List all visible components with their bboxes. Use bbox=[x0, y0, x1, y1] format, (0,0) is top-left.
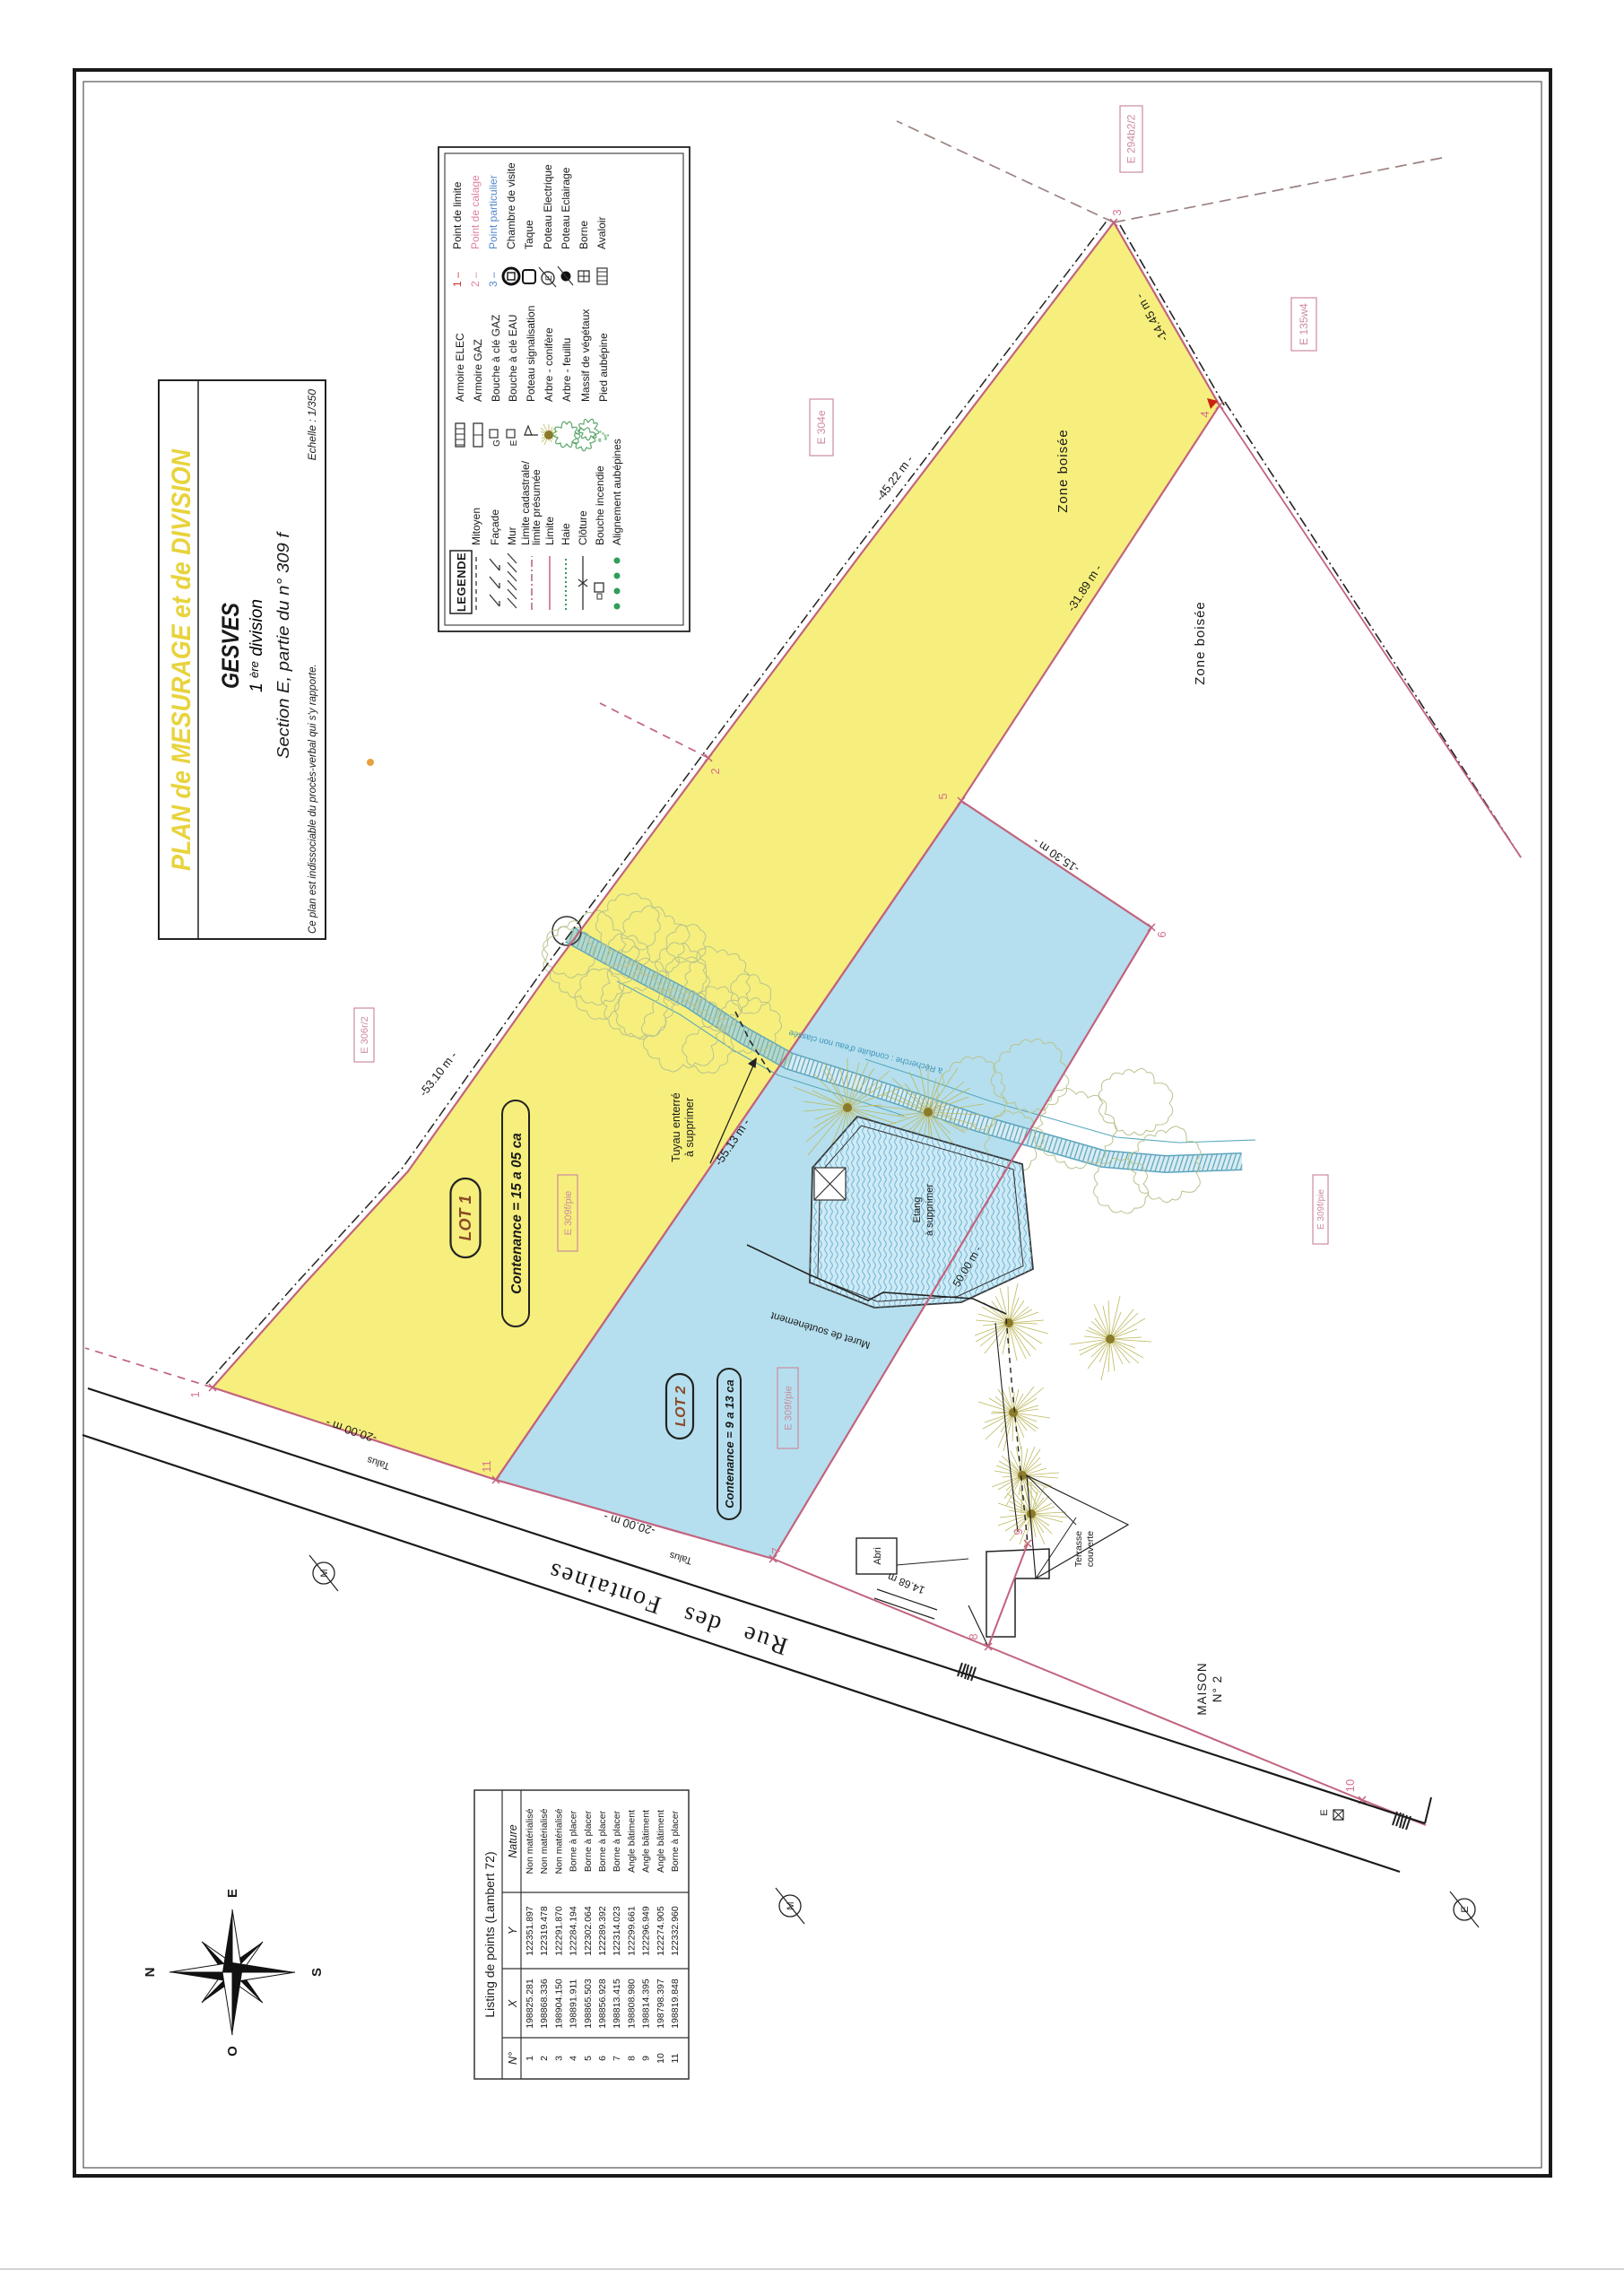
svg-text:Y: Y bbox=[507, 1926, 519, 1935]
svg-text:Pied aubépine: Pied aubépine bbox=[597, 333, 610, 402]
svg-text:1 –: 1 – bbox=[451, 272, 464, 287]
svg-text:E 309f/pie: E 309f/pie bbox=[783, 1386, 794, 1431]
svg-text:O: O bbox=[225, 2046, 240, 2057]
svg-text:Haie: Haie bbox=[560, 523, 572, 545]
svg-text:E 309f/pie: E 309f/pie bbox=[563, 1191, 574, 1236]
svg-text:8: 8 bbox=[967, 1633, 980, 1639]
svg-text:1: 1 bbox=[525, 2056, 535, 2061]
svg-text:Point de limite: Point de limite bbox=[451, 181, 464, 249]
svg-text:Talus: Talus bbox=[366, 1454, 392, 1472]
svg-text:E 294b2/2: E 294b2/2 bbox=[1125, 114, 1138, 163]
svg-text:Bouche à clé EAU: Bouche à clé EAU bbox=[507, 315, 519, 402]
svg-text:122332.960: 122332.960 bbox=[670, 1906, 681, 1956]
svg-text:Poteau Eclairage: Poteau Eclairage bbox=[560, 167, 572, 249]
svg-text:10: 10 bbox=[1343, 1779, 1357, 1792]
svg-text:LEGENDE: LEGENDE bbox=[455, 552, 468, 612]
svg-text:Arbre - feuillu: Arbre - feuillu bbox=[560, 338, 573, 402]
svg-text:198819.848: 198819.848 bbox=[670, 1979, 681, 2029]
svg-text:Mur: Mur bbox=[506, 526, 518, 545]
svg-text:Armoire GAZ: Armoire GAZ bbox=[472, 339, 484, 402]
svg-text:6: 6 bbox=[597, 2056, 608, 2061]
svg-text:Non matérialisé: Non matérialisé bbox=[525, 1808, 535, 1874]
svg-text:Ce plan est indissociable du p: Ce plan est indissociable du procès-verb… bbox=[308, 664, 318, 934]
svg-text:198798.397: 198798.397 bbox=[656, 1979, 666, 2029]
svg-text:2: 2 bbox=[708, 768, 722, 774]
svg-text:Contenance = 9 a 13 ca: Contenance = 9 a 13 ca bbox=[723, 1379, 736, 1508]
svg-text:Zone boisée: Zone boisée bbox=[1055, 429, 1071, 513]
svg-text:Alignement aubépines: Alignement aubépines bbox=[611, 439, 623, 545]
svg-text:E 135w4: E 135w4 bbox=[1298, 303, 1310, 345]
svg-text:198904.150: 198904.150 bbox=[553, 1979, 564, 2029]
svg-text:122291.870: 122291.870 bbox=[553, 1906, 564, 1956]
svg-text:198808.980: 198808.980 bbox=[626, 1979, 637, 2029]
svg-text:11: 11 bbox=[480, 1460, 493, 1473]
svg-text:122284.194: 122284.194 bbox=[569, 1906, 579, 1956]
svg-text:8: 8 bbox=[626, 2056, 637, 2061]
svg-text:GESVES: GESVES bbox=[217, 603, 244, 689]
svg-text:limite présumée: limite présumée bbox=[530, 469, 543, 545]
svg-text:E 306r/2: E 306r/2 bbox=[360, 1016, 370, 1054]
svg-text:LOT 2: LOT 2 bbox=[673, 1386, 689, 1426]
svg-text:Limite: Limite bbox=[543, 517, 556, 545]
svg-text:198825.281: 198825.281 bbox=[525, 1979, 535, 2029]
svg-text:Bouche incendie: Bouche incendie bbox=[594, 465, 606, 545]
svg-text:N° 2: N° 2 bbox=[1211, 1675, 1224, 1702]
svg-text:Point particulier: Point particulier bbox=[487, 175, 499, 249]
svg-text:198813.415: 198813.415 bbox=[612, 1979, 622, 2029]
svg-text:E: E bbox=[225, 1889, 240, 1898]
svg-text:Point de calage: Point de calage bbox=[469, 175, 482, 249]
svg-text:3: 3 bbox=[553, 2056, 564, 2061]
svg-text:9: 9 bbox=[641, 2056, 652, 2061]
svg-text:Poteau signalisation: Poteau signalisation bbox=[525, 306, 537, 402]
svg-text:Borne: Borne bbox=[578, 221, 590, 249]
svg-text:à supprimer: à supprimer bbox=[683, 1098, 696, 1157]
svg-text:Clôture: Clôture bbox=[577, 510, 589, 545]
svg-text:Non matérialisé: Non matérialisé bbox=[539, 1808, 550, 1874]
svg-text:Bouche à clé GAZ: Bouche à clé GAZ bbox=[490, 315, 502, 402]
svg-text:Rue des Fontaines: Rue des Fontaines bbox=[544, 1556, 792, 1660]
svg-text:Poteau Electrique: Poteau Electrique bbox=[542, 164, 554, 249]
svg-text:N: N bbox=[143, 1968, 158, 1978]
svg-text:7: 7 bbox=[769, 1547, 783, 1553]
svg-text:Nature: Nature bbox=[507, 1824, 519, 1858]
svg-text:1: 1 bbox=[188, 1391, 202, 1397]
svg-text:9: 9 bbox=[1012, 1528, 1025, 1535]
svg-text:Talus: Talus bbox=[668, 1549, 693, 1566]
svg-text:198814.395: 198814.395 bbox=[641, 1979, 652, 2029]
svg-text:Armoire ELEC: Armoire ELEC bbox=[454, 333, 466, 402]
svg-text:Zone boisée: Zone boisée bbox=[1193, 601, 1208, 685]
svg-text:Borne à placer: Borne à placer bbox=[583, 1810, 594, 1872]
svg-text:Mitoyen: Mitoyen bbox=[470, 508, 482, 545]
svg-text:122351.897: 122351.897 bbox=[525, 1906, 535, 1956]
svg-text:Angle bâtiment: Angle bâtiment bbox=[626, 1810, 637, 1873]
svg-text:couverte: couverte bbox=[1085, 1531, 1096, 1567]
svg-text:1 ère division: 1 ère division bbox=[248, 599, 266, 692]
svg-text:Etang: Etang bbox=[912, 1197, 923, 1223]
svg-text:G: G bbox=[492, 439, 502, 447]
svg-text:4: 4 bbox=[1198, 411, 1211, 417]
svg-text:E 304e: E 304e bbox=[815, 410, 828, 444]
svg-text:Listing de points (Lambert 72): Listing de points (Lambert 72) bbox=[482, 1851, 497, 2017]
svg-text:4: 4 bbox=[569, 2056, 579, 2061]
svg-text:Borne à placer: Borne à placer bbox=[597, 1810, 608, 1872]
svg-text:Terrasse: Terrasse bbox=[1073, 1531, 1084, 1567]
svg-text:3: 3 bbox=[1110, 209, 1124, 215]
svg-text:11: 11 bbox=[670, 2053, 681, 2063]
svg-text:-53.10 m -: -53.10 m - bbox=[416, 1048, 459, 1099]
svg-text:122314.023: 122314.023 bbox=[612, 1906, 622, 1956]
svg-text:PLAN de MESURAGE et de DIVISIO: PLAN de MESURAGE et de DIVISION bbox=[167, 448, 196, 871]
svg-text:Angle bâtiment: Angle bâtiment bbox=[656, 1810, 666, 1873]
svg-text:Non matérialisé: Non matérialisé bbox=[553, 1808, 564, 1874]
svg-text:N°: N° bbox=[507, 2052, 519, 2065]
svg-text:Abri: Abri bbox=[873, 1547, 883, 1565]
svg-text:E: E bbox=[1460, 1906, 1471, 1912]
svg-text:6: 6 bbox=[1155, 931, 1168, 937]
svg-text:2: 2 bbox=[539, 2056, 550, 2061]
svg-text:LOT 1: LOT 1 bbox=[456, 1195, 474, 1240]
svg-text:E 309f/pie: E 309f/pie bbox=[1316, 1189, 1326, 1230]
svg-text:S: S bbox=[309, 1968, 325, 1977]
svg-text:Massif de végétaux: Massif de végétaux bbox=[579, 309, 592, 402]
svg-text:198856.928: 198856.928 bbox=[597, 1979, 608, 2029]
svg-text:Avaloir: Avaloir bbox=[595, 217, 608, 249]
svg-text:198891.911: 198891.911 bbox=[569, 1979, 579, 2028]
svg-text:Chambre de visite: Chambre de visite bbox=[505, 162, 517, 249]
svg-text:à supprimer: à supprimer bbox=[925, 1184, 935, 1236]
svg-text:Contenance = 15 a 05 ca: Contenance = 15 a 05 ca bbox=[509, 1133, 525, 1294]
svg-text:10: 10 bbox=[656, 2053, 666, 2064]
svg-text:122289.392: 122289.392 bbox=[597, 1906, 608, 1956]
svg-text:E: E bbox=[509, 439, 519, 446]
svg-text:Façade: Façade bbox=[489, 509, 501, 545]
svg-text:198865.503: 198865.503 bbox=[583, 1979, 594, 2029]
svg-text:Borne à placer: Borne à placer bbox=[612, 1810, 622, 1872]
svg-text:Arbre - conifère: Arbre - conifère bbox=[543, 327, 555, 402]
svg-text:2 –: 2 – bbox=[469, 272, 482, 287]
svg-text:5: 5 bbox=[936, 793, 950, 799]
svg-text:Tuyau enterré: Tuyau enterré bbox=[670, 1092, 682, 1161]
svg-text:198868.336: 198868.336 bbox=[539, 1979, 550, 2029]
svg-text:122319.478: 122319.478 bbox=[539, 1906, 550, 1956]
svg-text:122299.661: 122299.661 bbox=[626, 1906, 637, 1956]
svg-text:Angle bâtiment: Angle bâtiment bbox=[641, 1810, 652, 1873]
svg-text:122296.949: 122296.949 bbox=[641, 1906, 652, 1956]
svg-text:5: 5 bbox=[583, 2056, 594, 2061]
svg-text:3 –: 3 – bbox=[487, 272, 499, 287]
svg-text:Echelle : 1/350: Echelle : 1/350 bbox=[306, 389, 318, 461]
svg-text:Taque: Taque bbox=[523, 220, 535, 249]
svg-text:7: 7 bbox=[612, 2056, 622, 2061]
svg-text:Borne à placer: Borne à placer bbox=[569, 1810, 579, 1872]
svg-text:E: E bbox=[1319, 1809, 1330, 1815]
svg-text:14.68 m: 14.68 m bbox=[886, 1570, 926, 1596]
svg-text:122302.064: 122302.064 bbox=[583, 1906, 594, 1956]
svg-text:122274.905: 122274.905 bbox=[656, 1906, 666, 1956]
svg-text:MAISON: MAISON bbox=[1195, 1662, 1209, 1715]
svg-text:X: X bbox=[507, 1999, 519, 2008]
svg-text:Borne à placer: Borne à placer bbox=[670, 1810, 681, 1872]
svg-text:Section E, partie du n° 309 f: Section E, partie du n° 309 f bbox=[274, 531, 292, 759]
